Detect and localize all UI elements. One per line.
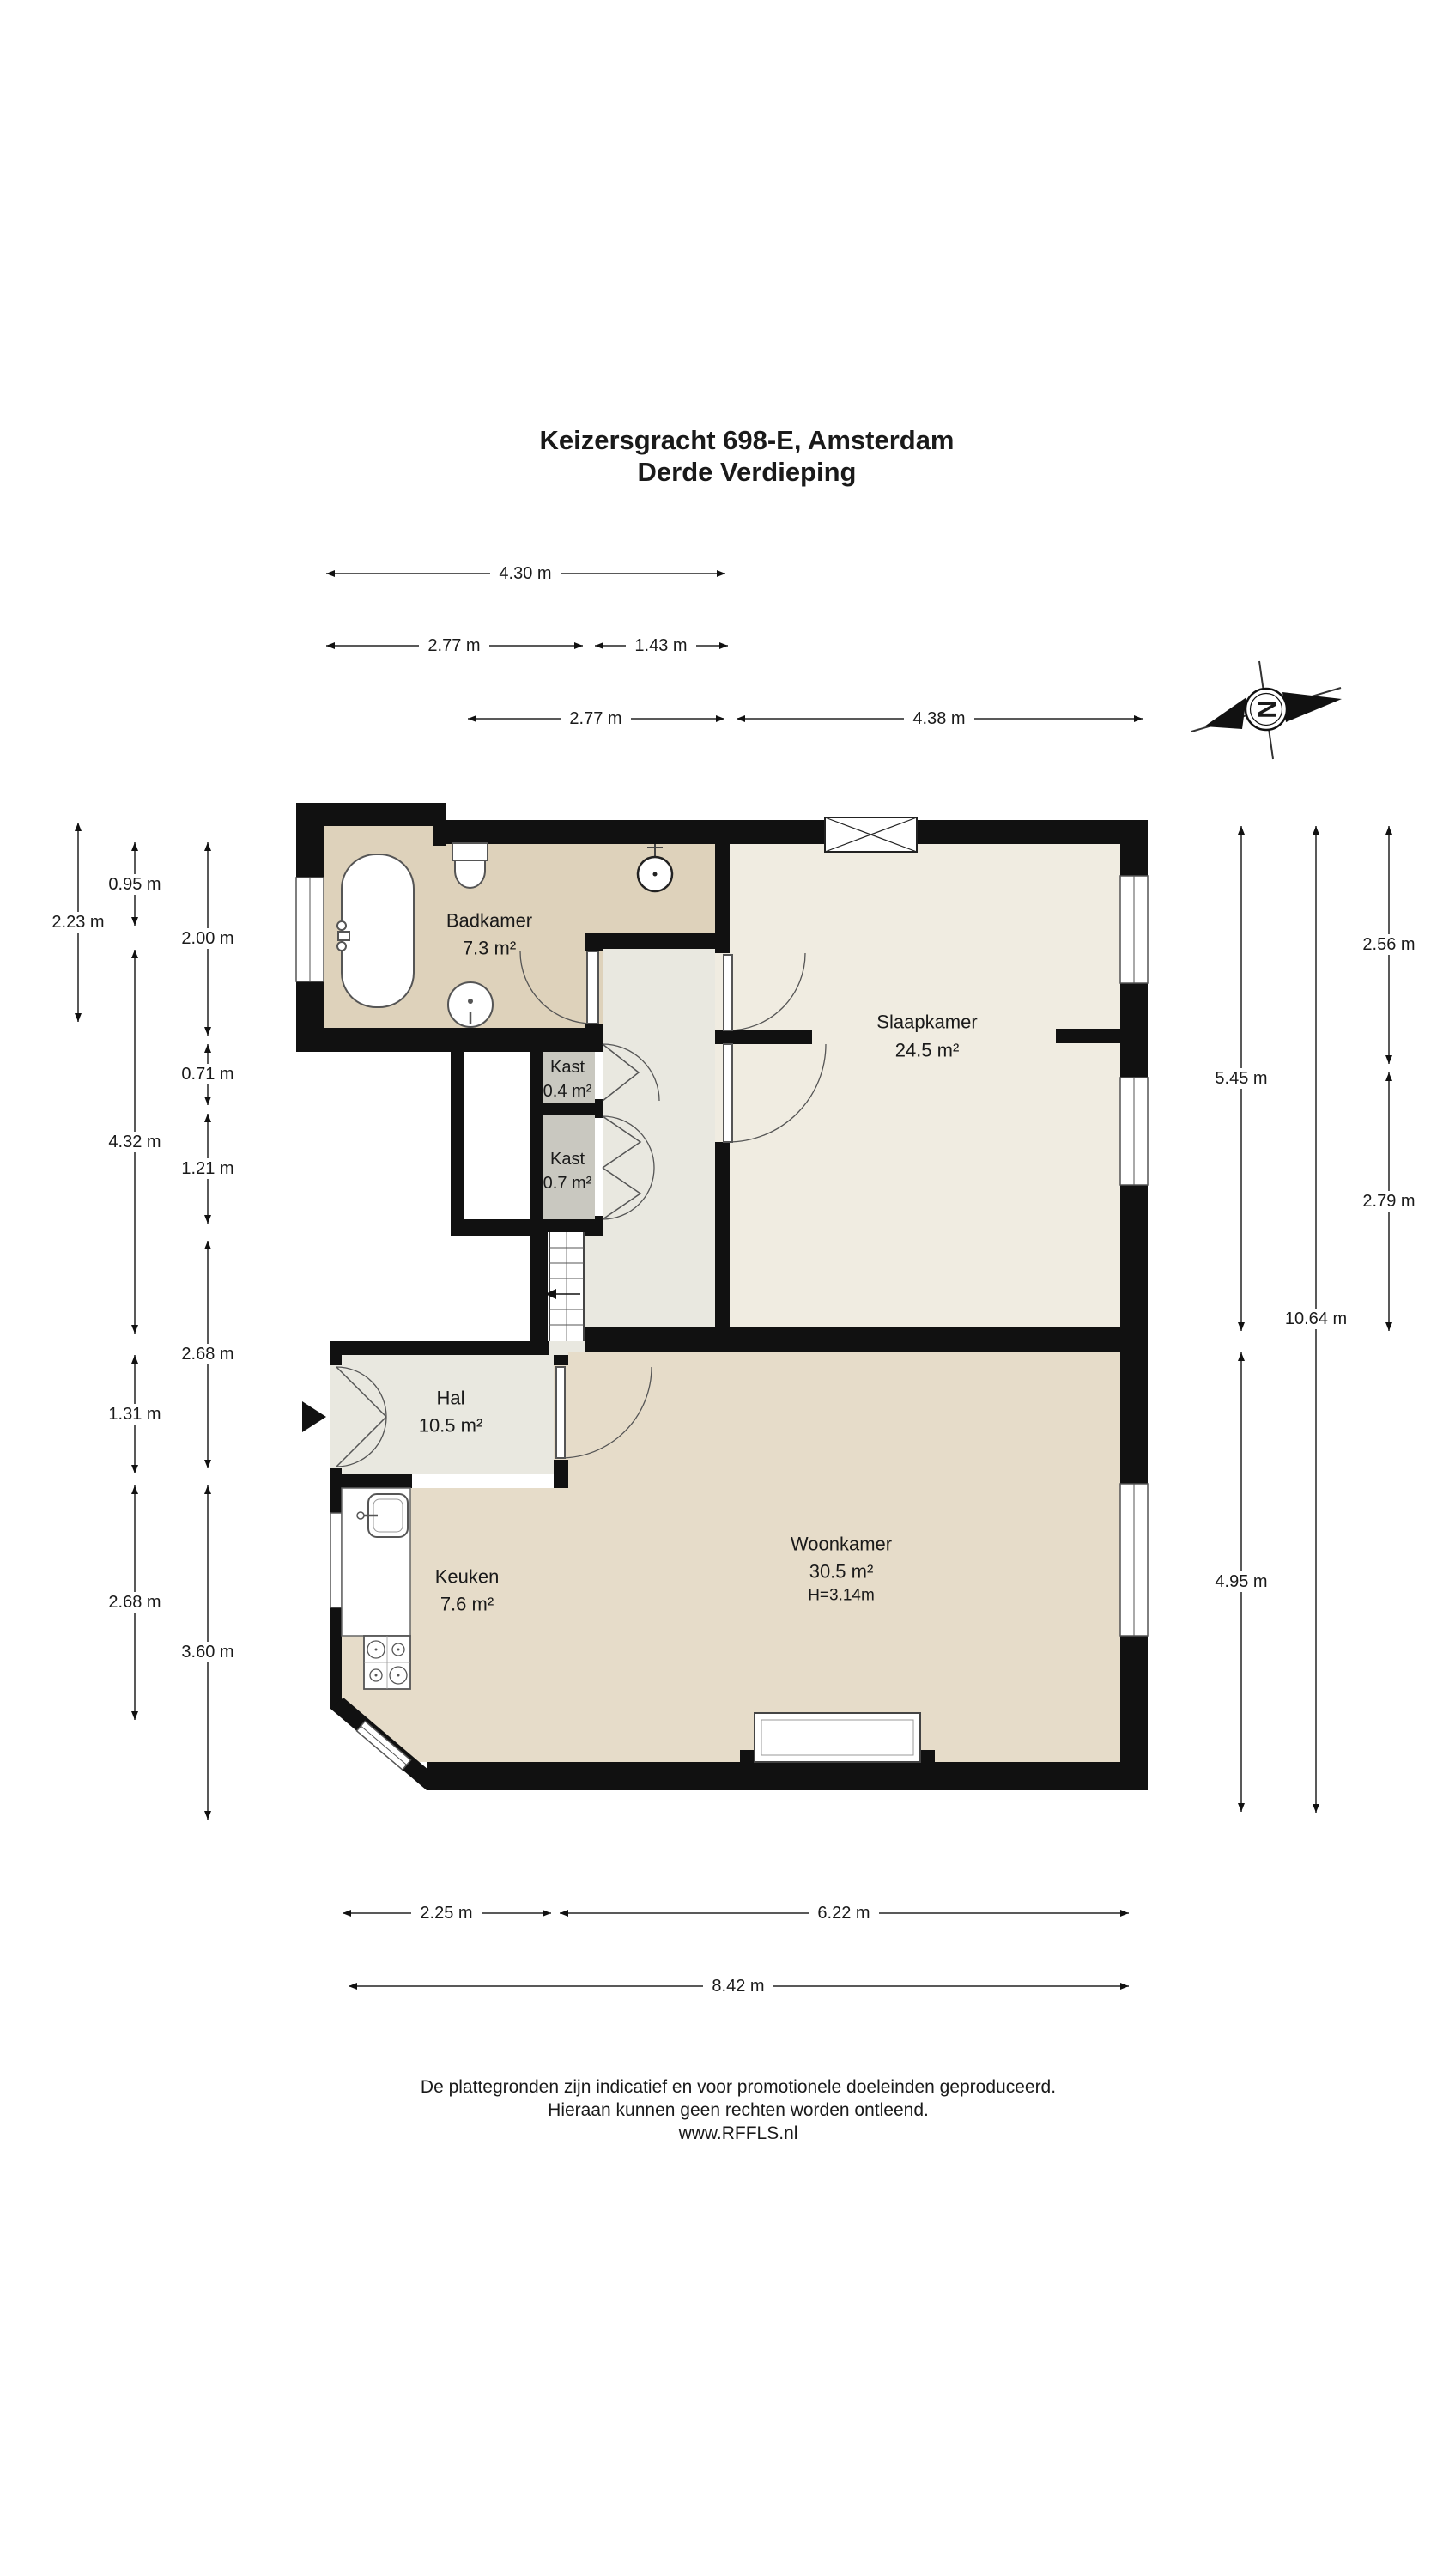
svg-text:4.95 m: 4.95 m (1215, 1572, 1267, 1591)
svg-text:8.42 m: 8.42 m (712, 1977, 764, 1996)
entrance-arrow-icon (302, 1401, 326, 1432)
dim-bottom-622: 6.22 m (560, 1903, 1129, 1923)
svg-text:5.45 m: 5.45 m (1215, 1069, 1267, 1088)
dimensions-top: 4.30 m 2.77 m 1.43 m 2.77 m 4.38 m (326, 563, 1143, 729)
dim-left-200: 2.00 m (173, 842, 243, 1036)
svg-text:1.43 m: 1.43 m (634, 636, 687, 655)
void-shaft (464, 1039, 530, 1219)
dim-right-545: 5.45 m (1206, 826, 1276, 1331)
svg-text:6.22 m: 6.22 m (817, 1904, 870, 1923)
footer-website: www.RFFLS.nl (678, 2123, 798, 2143)
label-badkamer: Badkamer (446, 910, 532, 932)
label-badkamer-area: 7.3 m² (463, 938, 516, 959)
svg-text:4.32 m: 4.32 m (108, 1133, 161, 1151)
label-kast1: Kast (550, 1058, 585, 1077)
svg-text:2.77 m: 2.77 m (427, 636, 480, 655)
svg-text:3.60 m: 3.60 m (181, 1643, 233, 1662)
dimensions-left: 2.23 m 0.95 m 2.00 m 0.71 m 4.32 m 1.21 … (43, 823, 243, 1820)
dim-left-071: 0.71 m (173, 1044, 243, 1105)
dim-top-430: 4.30 m (326, 563, 725, 584)
stairs (545, 1232, 585, 1341)
bedroom-window-2 (1120, 1078, 1148, 1185)
dim-right-256: 2.56 m (1354, 826, 1424, 1064)
page-title: Keizersgracht 698-E, Amsterdam (540, 425, 955, 455)
svg-text:2.56 m: 2.56 m (1362, 935, 1415, 954)
svg-text:2.25 m: 2.25 m (420, 1904, 472, 1923)
stove (364, 1636, 410, 1689)
dim-top-438: 4.38 m (737, 708, 1143, 729)
room-slaapkamer-floor (730, 844, 1120, 1327)
bathtub (337, 854, 414, 1007)
dimensions-bottom: 2.25 m 6.22 m 8.42 m (343, 1903, 1129, 1996)
label-hal-area: 10.5 m² (419, 1415, 483, 1437)
label-slaapkamer-area: 24.5 m² (895, 1040, 960, 1061)
svg-text:2.79 m: 2.79 m (1362, 1192, 1415, 1211)
svg-text:1.21 m: 1.21 m (181, 1159, 233, 1178)
svg-text:2.77 m: 2.77 m (569, 709, 621, 728)
label-woonkamer-area: 30.5 m² (809, 1561, 874, 1583)
page-subtitle: Derde Verdieping (638, 457, 857, 487)
bedroom-window-1 (1120, 876, 1148, 983)
svg-text:4.38 m: 4.38 m (912, 709, 965, 728)
dim-top-143: 1.43 m (595, 635, 728, 656)
dim-left-223: 2.23 m (43, 823, 113, 1022)
bathroom-window (296, 878, 324, 981)
label-woonkamer-height: H=3.14m (808, 1587, 875, 1605)
label-hal: Hal (436, 1388, 464, 1409)
bathroom-sink (448, 982, 493, 1027)
svg-text:2.00 m: 2.00 m (181, 929, 233, 948)
dim-left-360: 3.60 m (173, 1485, 243, 1820)
svg-text:10.64 m: 10.64 m (1285, 1309, 1347, 1328)
footer-disclaimer-1: De plattegronden zijn indicatief en voor… (421, 2077, 1056, 2097)
dim-left-131: 1.31 m (100, 1355, 170, 1473)
dim-bottom-225: 2.25 m (343, 1903, 551, 1923)
dim-right-495: 4.95 m (1206, 1352, 1276, 1812)
footer-disclaimer-2: Hieraan kunnen geen rechten worden ontle… (548, 2100, 929, 2120)
label-keuken: Keuken (435, 1566, 500, 1588)
compass-rose: N (1191, 661, 1342, 759)
label-slaapkamer: Slaapkamer (876, 1012, 977, 1033)
dim-top-277a: 2.77 m (326, 635, 583, 656)
dimensions-right: 5.45 m 4.95 m 10.64 m 2.56 m 2.79 m (1206, 826, 1424, 1813)
svg-text:0.95 m: 0.95 m (108, 875, 161, 894)
corridor-floor (587, 949, 715, 1327)
dim-bottom-842: 8.42 m (349, 1976, 1129, 1996)
north-letter: N (1252, 700, 1281, 719)
svg-text:0.71 m: 0.71 m (181, 1065, 233, 1084)
toilet (452, 843, 488, 888)
label-kast2: Kast (550, 1150, 585, 1169)
dim-left-268a: 2.68 m (173, 1241, 243, 1468)
balcony-doors (755, 1713, 920, 1762)
vent-icon (825, 817, 917, 852)
floorplan-page: Keizersgracht 698-E, Amsterdam Derde Ver… (0, 0, 1449, 2576)
svg-text:1.31 m: 1.31 m (108, 1405, 161, 1424)
dim-left-432: 4.32 m (100, 950, 170, 1334)
dim-top-277b: 2.77 m (468, 708, 724, 729)
livingroom-window (1120, 1484, 1148, 1636)
dim-left-121: 1.21 m (173, 1114, 243, 1224)
label-keuken-area: 7.6 m² (440, 1594, 494, 1615)
floorplan-canvas: Keizersgracht 698-E, Amsterdam Derde Ver… (0, 0, 1449, 2576)
dim-right-279: 2.79 m (1354, 1072, 1424, 1331)
svg-text:2.68 m: 2.68 m (108, 1593, 161, 1612)
footer: De plattegronden zijn indicatief en voor… (421, 2077, 1056, 2143)
label-woonkamer: Woonkamer (791, 1534, 892, 1555)
svg-text:2.68 m: 2.68 m (181, 1345, 233, 1364)
label-kast2-area: 0.7 m² (543, 1174, 592, 1193)
kitchen-window (330, 1513, 342, 1607)
dim-right-1064: 10.64 m (1276, 826, 1355, 1813)
dim-left-268b: 2.68 m (100, 1485, 170, 1720)
label-kast1-area: 0.4 m² (543, 1082, 592, 1101)
svg-text:4.30 m: 4.30 m (499, 564, 551, 583)
svg-text:2.23 m: 2.23 m (52, 913, 104, 932)
